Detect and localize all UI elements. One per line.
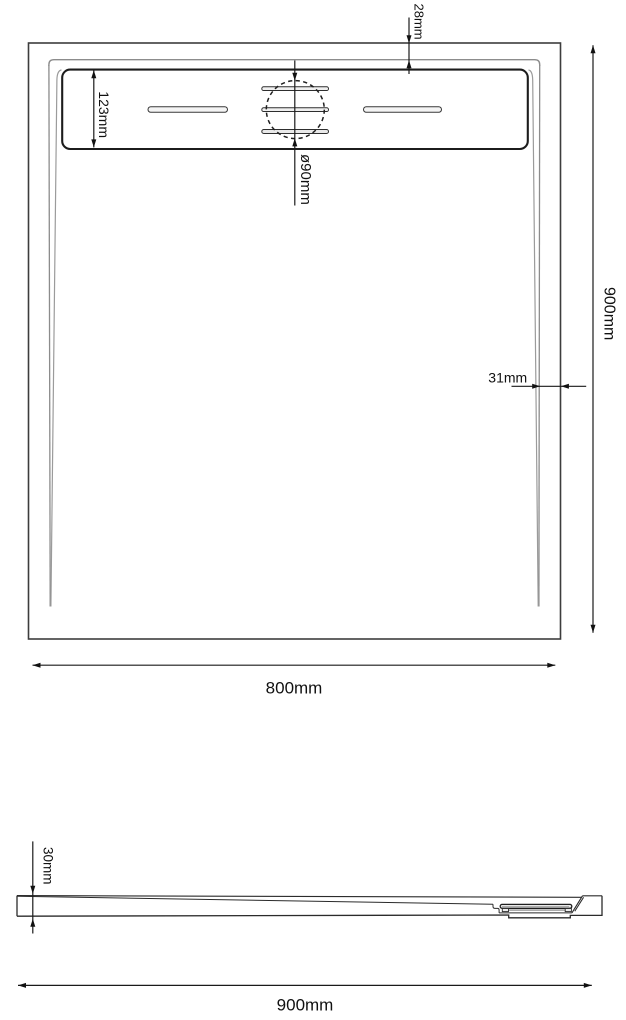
svg-text:900mm: 900mm — [277, 996, 334, 1015]
svg-text:31mm: 31mm — [488, 370, 527, 386]
svg-text:123mm: 123mm — [96, 91, 112, 138]
svg-text:900mm: 900mm — [601, 287, 618, 340]
svg-text:28mm: 28mm — [412, 4, 427, 40]
svg-text:ø90mm: ø90mm — [297, 154, 314, 205]
svg-text:30mm: 30mm — [41, 847, 56, 885]
svg-text:800mm: 800mm — [266, 679, 323, 698]
